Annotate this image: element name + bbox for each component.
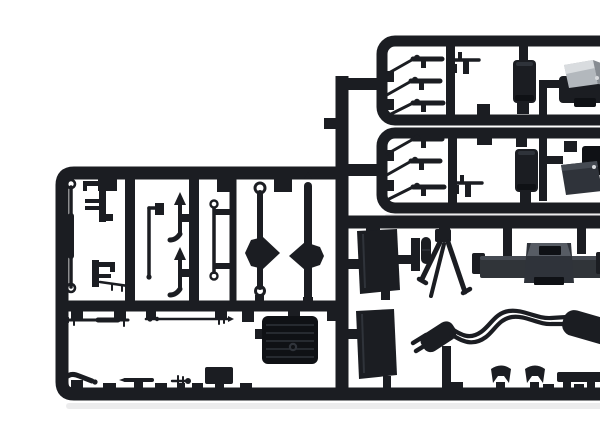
rear-axle-part [289,172,324,306]
sprue-photo [40,16,600,416]
front-axle-part [245,183,280,305]
elbow-pipe-part [146,203,164,280]
canister-part-top [513,60,536,103]
sprue-illustration [40,16,600,416]
cab-panel-dark [539,141,600,195]
transfer-case-part [472,226,600,285]
exhaust-system-part [413,308,600,396]
seat-lower-part [346,309,397,392]
battery-box-part [255,316,318,364]
chassis-bracket-lower [92,260,128,291]
seat-upper-part [346,229,411,300]
cab-panel-silver [543,60,600,107]
canister-part-bottom [515,149,538,192]
